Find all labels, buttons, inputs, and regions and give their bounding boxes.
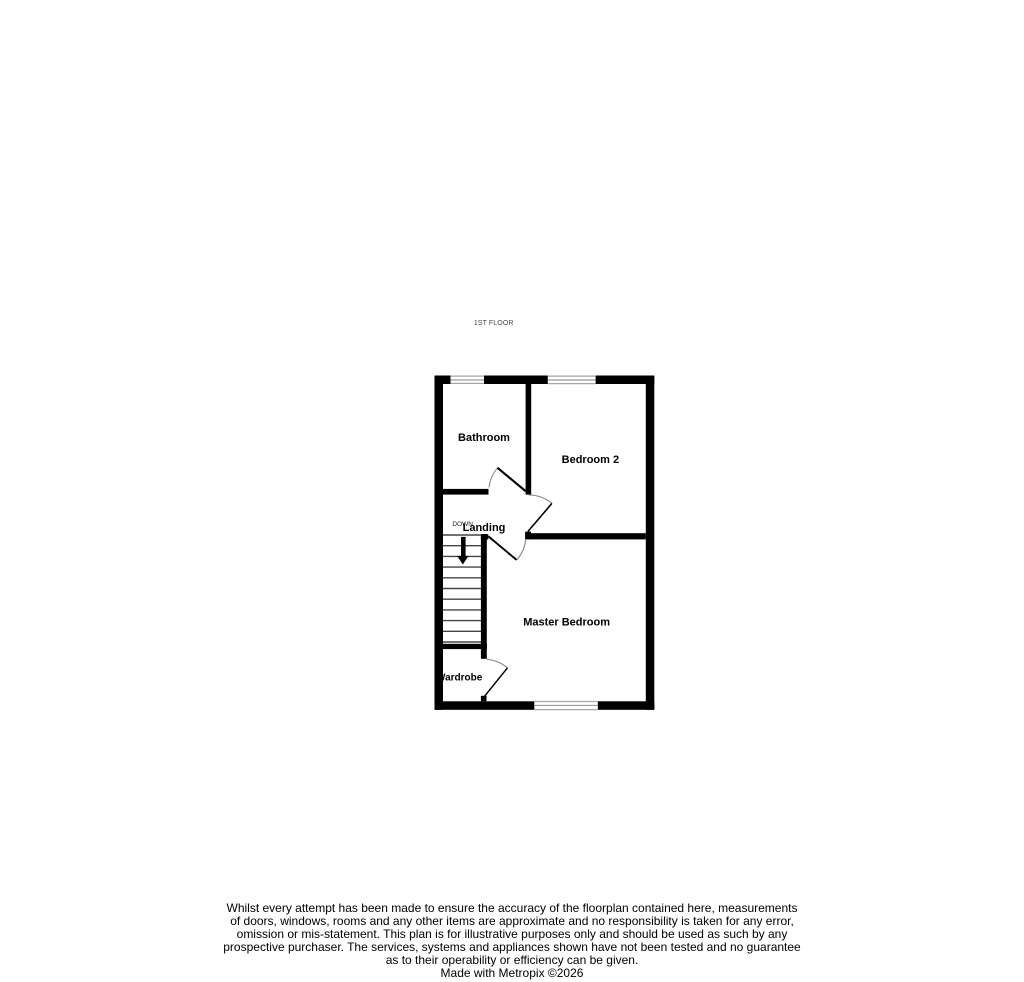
svg-text:1ST FLOOR: 1ST FLOOR [474, 320, 514, 327]
svg-text:Master Bedroom: Master Bedroom [523, 617, 610, 629]
svg-text:Wardrobe: Wardrobe [436, 673, 483, 684]
svg-text:Bathroom: Bathroom [458, 432, 510, 444]
svg-text:Bedroom 2: Bedroom 2 [562, 454, 619, 466]
svg-text:Landing: Landing [463, 522, 506, 534]
